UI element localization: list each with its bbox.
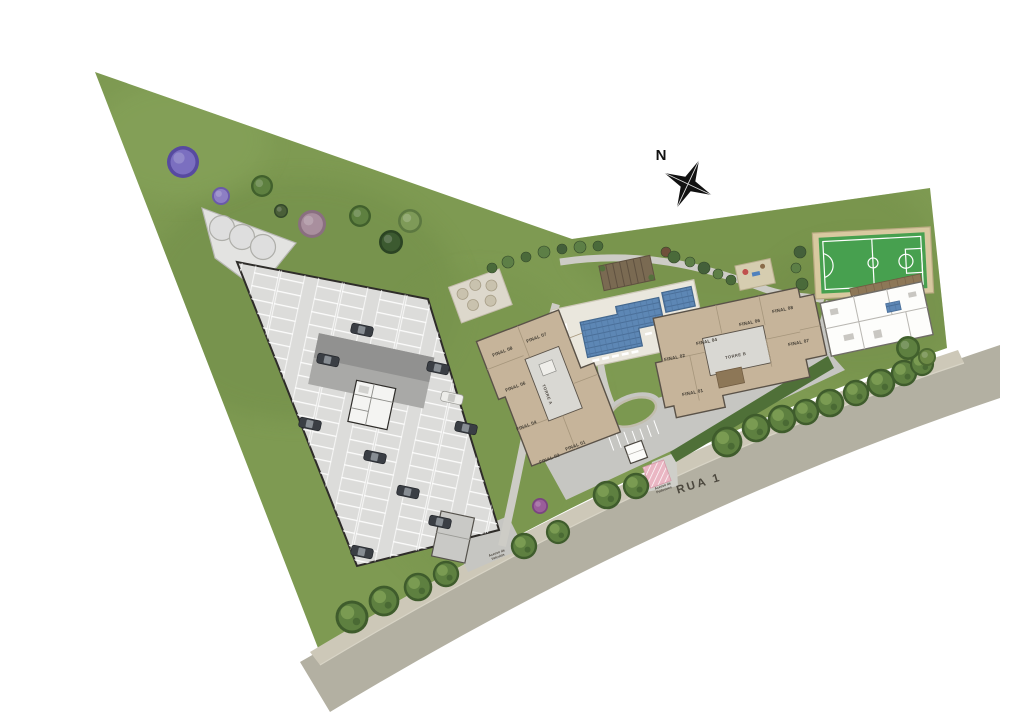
site-plan-rendering: FINAL 08 FINAL 07 FINAL 06 FINAL 04 FINA… [0,0,1024,717]
tree-canopy [534,500,546,512]
grass-light-patch [90,80,270,200]
tree-highlight [277,207,282,212]
tree-highlight [304,216,314,226]
ornamental-tree-icon [918,348,936,366]
plaza-circle [251,235,276,260]
tree-highlight [922,352,928,358]
ornamental-tree-icon [212,187,230,205]
tree-highlight [403,214,411,222]
shrub-icon [794,246,806,258]
garage-core-building [348,380,396,429]
shrub-icon [685,257,695,267]
ornamental-tree-icon [349,205,371,227]
tree-highlight [901,341,909,349]
shrub-icon [791,263,801,273]
shrub-icon [557,244,567,254]
ornamental-tree-icon [896,336,920,360]
ornamental-tree-icon [532,498,548,514]
shrub-icon [668,251,680,263]
ornamental-tree-icon [251,175,273,197]
street-tree-icon [816,389,845,418]
street-tree-icon [433,561,459,587]
tree-canopy [253,177,270,194]
tree-canopy [301,213,323,235]
tree-canopy [382,233,401,252]
ornamental-tree-icon [167,146,199,178]
shrub-icon [487,263,497,273]
tree-highlight [173,152,184,163]
tree-canopy [920,350,934,364]
tree-highlight [384,235,392,243]
shrub-icon [713,269,723,279]
tree-canopy [214,189,228,203]
shrub-icon [574,241,586,253]
street-tree-icon [546,520,570,544]
shrub-icon [593,241,603,251]
tree-canopy [276,206,287,217]
shrub-icon [521,252,531,262]
street-tree-icon [511,533,537,559]
street-tree-icon [369,586,400,617]
tree-canopy [351,207,368,224]
ornamental-tree-icon [379,230,403,254]
street-tree-icon [623,473,649,499]
shrub-icon [796,278,808,290]
street-tree-icon [742,414,771,443]
tree-canopy [401,212,420,231]
site-plan-svg: FINAL 08 FINAL 07 FINAL 06 FINAL 04 FINA… [0,0,1024,717]
tree-highlight [535,501,541,507]
north-arrow: N [653,147,722,219]
ornamental-tree-icon [274,204,288,218]
street-tree-icon [793,399,819,425]
tree-highlight [216,191,222,197]
ornamental-tree-icon [298,210,326,238]
tree-canopy [899,339,918,358]
street-tree-icon [768,405,797,434]
shrub-icon [698,262,710,274]
street-tree-icon [336,601,369,634]
shrub-icon [502,256,514,268]
tree-highlight [353,209,361,217]
street-tree-icon [712,427,743,458]
tree-highlight [255,179,263,187]
shrub-icon [538,246,550,258]
street-tree-icon [404,573,433,602]
street-tree-icon [593,481,622,510]
street-tree-icon [843,380,869,406]
north-label: N [656,147,667,164]
ornamental-tree-icon [398,209,422,233]
tree-canopy [171,150,196,175]
shrub-icon [726,275,736,285]
